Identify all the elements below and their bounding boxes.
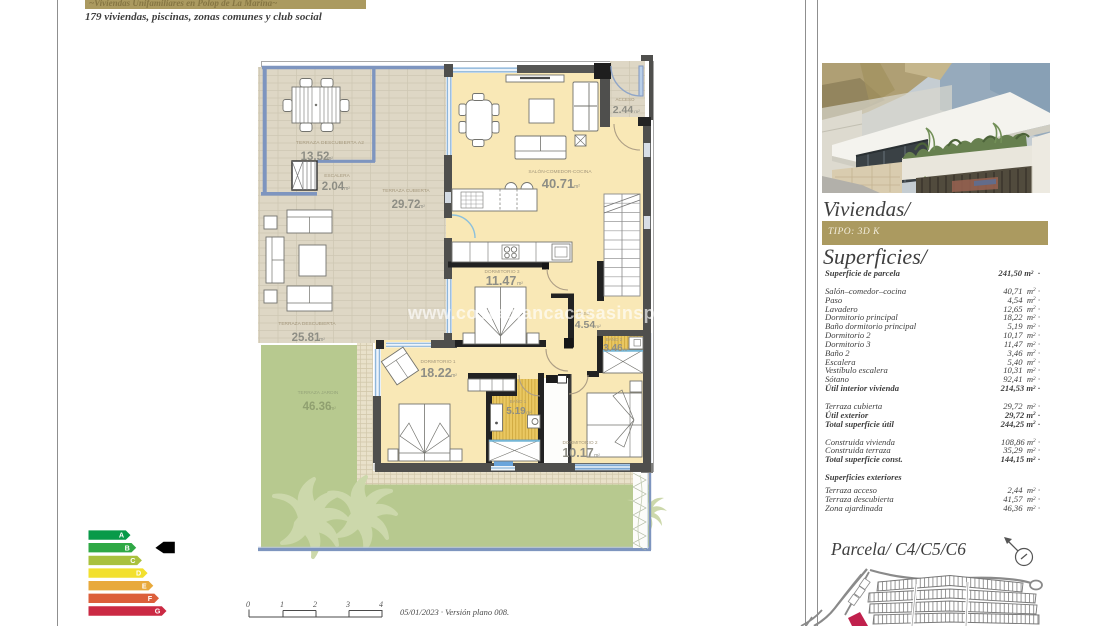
svg-text:25.81: 25.81 (292, 332, 321, 344)
svg-text:m²: m² (634, 109, 640, 115)
svg-text:2.04: 2.04 (322, 181, 345, 193)
svg-text:46.36: 46.36 (303, 401, 332, 413)
svg-text:m²: m² (517, 281, 523, 287)
svg-text:18.22: 18.22 (420, 366, 451, 380)
svg-text:TERRAZA JARDIN: TERRAZA JARDIN (298, 390, 339, 396)
svg-text:SALÓN-COMEDOR-COCINA: SALÓN-COMEDOR-COCINA (528, 168, 592, 175)
svg-text:m²: m² (330, 406, 336, 412)
svg-text:DORMITORIO 1: DORMITORIO 1 (420, 359, 455, 365)
svg-text:ACCESO: ACCESO (615, 97, 635, 102)
svg-text:BAÑO 2: BAÑO 2 (606, 336, 623, 342)
svg-text:m²: m² (594, 453, 600, 459)
svg-text:C: C (130, 556, 135, 565)
svg-text:10.17: 10.17 (562, 446, 593, 460)
svg-text:m²: m² (623, 347, 629, 353)
svg-text:40.71: 40.71 (542, 176, 575, 191)
svg-text:E: E (142, 581, 147, 590)
svg-text:m²: m² (419, 204, 425, 210)
svg-text:m²: m² (327, 156, 333, 162)
svg-text:2.44: 2.44 (613, 104, 634, 116)
svg-text:F: F (148, 594, 153, 603)
svg-text:m²: m² (319, 337, 325, 343)
svg-text:5.19: 5.19 (506, 406, 526, 417)
svg-text:3.46: 3.46 (603, 343, 623, 354)
svg-text:ESCALERA: ESCALERA (324, 173, 350, 179)
svg-text:G: G (155, 607, 161, 616)
svg-text:TERRAZA CUBIERTA: TERRAZA CUBIERTA (382, 188, 430, 194)
svg-text:11.47: 11.47 (486, 274, 517, 288)
svg-text:m²: m² (344, 186, 350, 192)
svg-text:m²: m² (595, 324, 601, 330)
svg-text:D: D (136, 569, 141, 578)
svg-text:13.52: 13.52 (301, 151, 330, 163)
svg-text:TERRAZA DESCUBIERTA: TERRAZA DESCUBIERTA (278, 321, 336, 327)
svg-text:m²: m² (574, 184, 580, 190)
svg-text:m²: m² (451, 373, 457, 379)
svg-text:A: A (119, 531, 124, 540)
svg-text:29.72: 29.72 (392, 199, 421, 211)
svg-text:m²: m² (526, 410, 532, 416)
svg-text:TERRAZA DESCUBIERTA A2: TERRAZA DESCUBIERTA A2 (296, 140, 364, 146)
svg-text:BAÑO 1: BAÑO 1 (510, 398, 527, 404)
svg-text:B: B (125, 543, 130, 552)
